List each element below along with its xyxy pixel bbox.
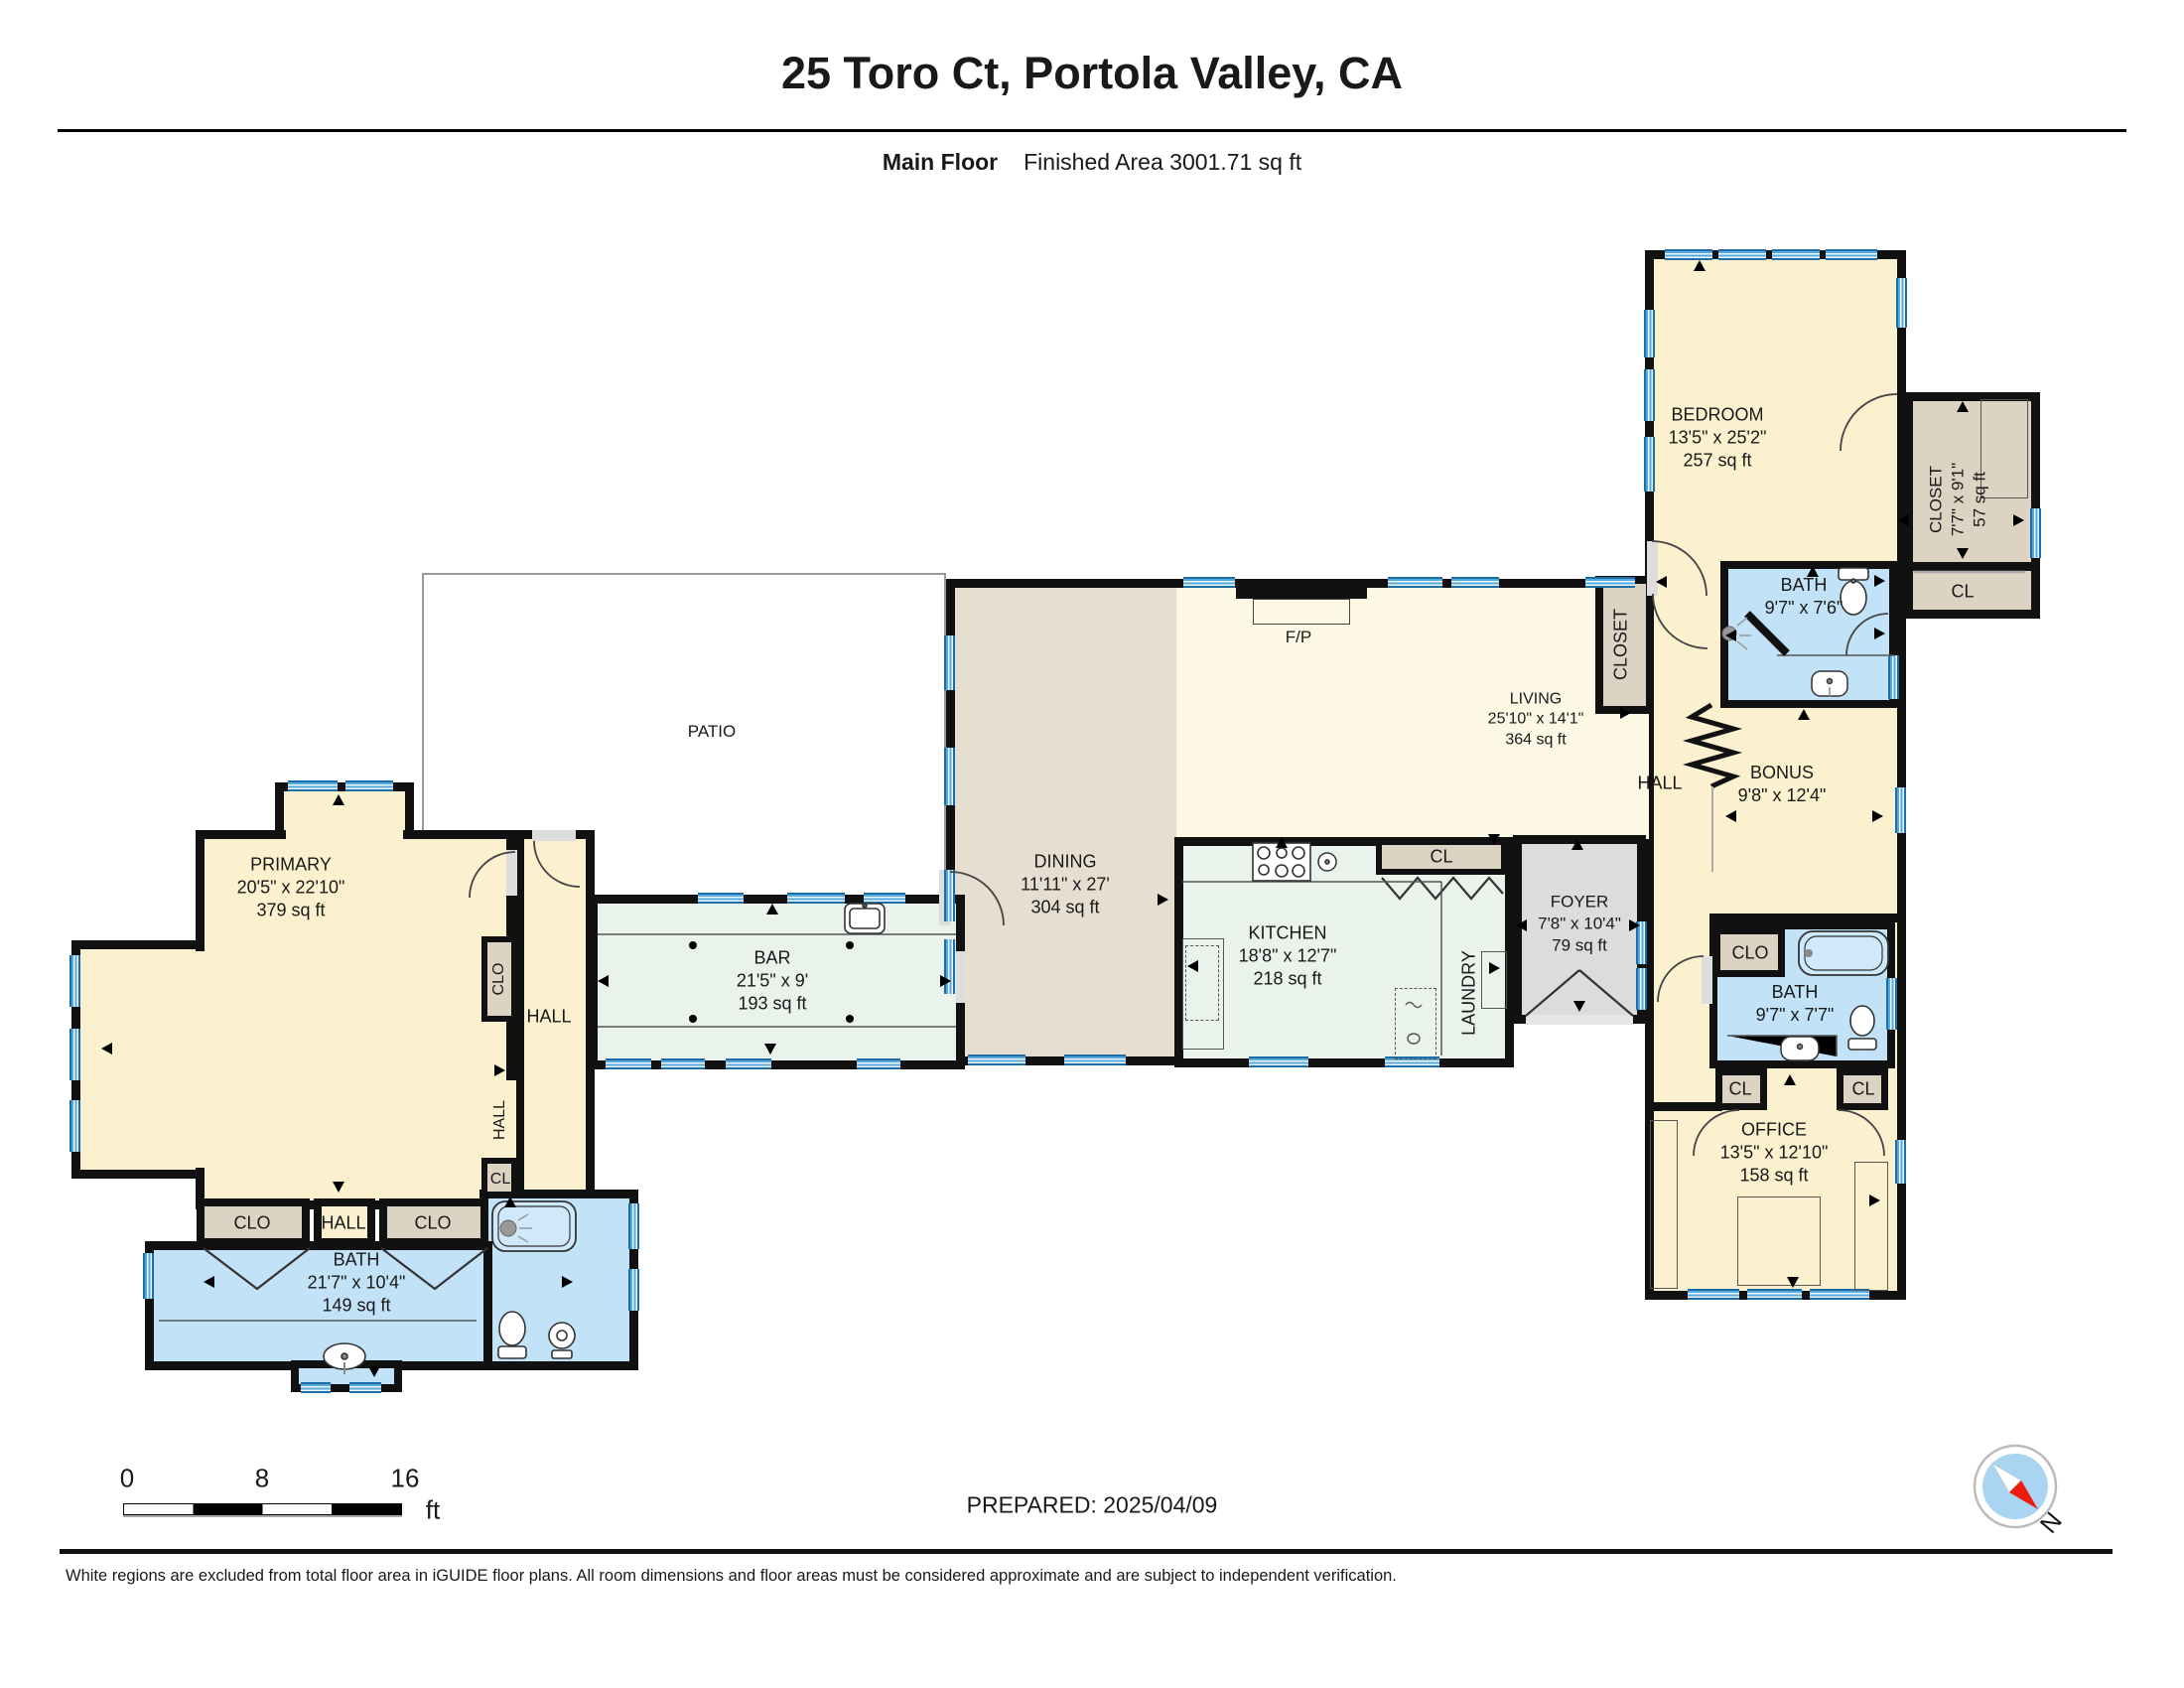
window xyxy=(1826,249,1877,260)
bar-column-dot xyxy=(846,941,854,949)
window xyxy=(1064,1055,1126,1065)
window xyxy=(1772,249,1820,260)
window xyxy=(944,635,955,690)
foyer-entry-gap xyxy=(1526,1015,1633,1025)
primary-label: PRIMARY 20'5" x 22'10" 379 sq ft xyxy=(237,853,345,921)
window xyxy=(1895,787,1906,833)
bar-column-dot xyxy=(689,941,697,949)
window xyxy=(1896,278,1907,328)
compass-icon: N xyxy=(1975,1446,2068,1539)
camera-marker xyxy=(598,975,609,987)
fireplace-wall xyxy=(1236,579,1367,599)
camera-marker xyxy=(1798,709,1810,720)
fireplace-label: F/P xyxy=(1286,627,1311,648)
laundry-box xyxy=(1481,951,1507,1009)
kitchen-counter-left xyxy=(1182,938,1224,1050)
disclaimer-text: White regions are excluded from total fl… xyxy=(66,1567,1397,1586)
window xyxy=(1644,310,1655,357)
camera-marker xyxy=(1787,1277,1799,1288)
cl-left-label: CL xyxy=(490,1170,510,1190)
window xyxy=(661,1058,705,1069)
footer-divider xyxy=(60,1549,2113,1554)
camera-marker xyxy=(1489,962,1500,974)
bar-label: BAR 21'5" x 9' 193 sq ft xyxy=(737,946,808,1015)
bar-dining-door-gap xyxy=(956,951,965,1003)
camera-marker xyxy=(1957,548,1969,559)
camera-marker xyxy=(1694,260,1706,271)
window xyxy=(1718,249,1766,260)
window xyxy=(345,780,393,791)
bath-office-door-gap xyxy=(1702,956,1712,1004)
living-closet-label: CLOSET xyxy=(1609,609,1632,680)
window xyxy=(628,1203,639,1249)
window xyxy=(1183,577,1235,588)
window xyxy=(1636,968,1647,1010)
window xyxy=(968,1055,1025,1065)
camera-marker xyxy=(1898,514,1909,526)
camera-marker xyxy=(1158,894,1168,906)
window xyxy=(1644,437,1655,492)
window xyxy=(143,1253,154,1299)
camera-marker xyxy=(1869,1195,1880,1206)
office-cl2-label: CL xyxy=(1851,1077,1874,1100)
bedroom-cl-label: CL xyxy=(1951,580,1974,603)
camera-marker xyxy=(1488,834,1500,845)
window xyxy=(944,870,955,921)
corridor-office-wall xyxy=(1645,1102,1722,1111)
bath-office-label: BATH 9'7" x 7'7" xyxy=(1756,981,1835,1027)
camera-marker xyxy=(1874,575,1885,587)
window xyxy=(698,893,744,904)
hall-vertical-label: HALL xyxy=(490,1100,510,1140)
window xyxy=(349,1382,381,1393)
window xyxy=(726,1058,771,1069)
camera-marker xyxy=(562,1276,573,1288)
camera-marker xyxy=(101,1043,112,1055)
camera-marker xyxy=(1874,628,1885,639)
foyer-label: FOYER 7'8" x 10'4" 79 sq ft xyxy=(1538,891,1621,955)
prepared-date-label: PREPARED: 2025/04/09 xyxy=(967,1492,1218,1519)
kitchen-cl-label: CL xyxy=(1430,845,1452,868)
camera-marker xyxy=(1620,707,1631,719)
dining-room xyxy=(946,579,1176,1065)
bath-primary-right-comp xyxy=(479,1190,638,1370)
camera-marker xyxy=(2013,514,2024,526)
scale-tick-8: 8 xyxy=(255,1464,269,1494)
bonus-bath-wall xyxy=(1709,914,1906,922)
window xyxy=(1249,1056,1308,1067)
bar-column-dot xyxy=(846,1015,854,1023)
scale-tick-16: 16 xyxy=(391,1464,420,1494)
primary-bump-patch xyxy=(286,827,403,842)
window xyxy=(787,893,845,904)
camera-marker xyxy=(940,975,951,987)
window xyxy=(288,780,338,791)
camera-marker xyxy=(764,1044,776,1055)
living-label: LIVING 25'10" x 14'1" 364 sq ft xyxy=(1488,689,1584,750)
title-divider xyxy=(58,129,2126,132)
window xyxy=(1451,577,1499,588)
scale-bar xyxy=(123,1503,402,1515)
laundry-label: LAUNDRY xyxy=(1457,950,1480,1036)
camera-marker xyxy=(1725,630,1736,641)
window xyxy=(69,1029,80,1080)
office-label: OFFICE 13'5" x 12'10" 158 sq ft xyxy=(1720,1118,1829,1187)
camera-marker xyxy=(1276,837,1288,848)
camera-marker xyxy=(368,1366,380,1377)
primary-clo-label: CLO xyxy=(489,963,509,996)
kitchen-label: KITCHEN 18'8" x 12'7" 218 sq ft xyxy=(1239,921,1337,990)
hall-left-label: HALL xyxy=(526,1005,571,1028)
camera-marker xyxy=(1784,1074,1796,1085)
camera-marker xyxy=(1656,576,1667,588)
window xyxy=(857,1058,900,1069)
bath-clo2-label: CLO xyxy=(414,1211,451,1234)
window xyxy=(944,748,955,805)
window xyxy=(628,1269,639,1311)
bath-primary-label: BATH 21'7" x 10'4" 149 sq ft xyxy=(308,1248,406,1317)
window xyxy=(301,1382,331,1393)
scale-unit-label: ft xyxy=(426,1495,440,1526)
camera-marker xyxy=(1725,810,1736,822)
window xyxy=(864,893,905,904)
hall-right-label: HALL xyxy=(1637,772,1682,794)
camera-marker xyxy=(494,1064,505,1076)
window xyxy=(1688,1289,1739,1300)
primary-left-patch xyxy=(194,951,207,1168)
office-shelf-left xyxy=(1650,1120,1678,1289)
camera-marker xyxy=(1187,960,1198,972)
bath-hall-label: HALL xyxy=(321,1211,365,1234)
floor-subtitle: Main FloorFinished Area 3001.71 sq ft xyxy=(0,149,2184,176)
floorplan-page: { "header": { "title": "25 Toro Ct, Port… xyxy=(0,0,2184,1688)
patio-label: PATIO xyxy=(688,721,737,743)
window xyxy=(1644,369,1655,421)
office-cl1-label: CL xyxy=(1728,1077,1751,1100)
fireplace-hearth xyxy=(1253,599,1350,625)
camera-marker xyxy=(1957,401,1969,412)
camera-marker xyxy=(766,904,778,914)
bonus-label: BONUS 9'8" x 12'4" xyxy=(1738,762,1827,807)
window xyxy=(1888,655,1899,699)
finished-area-label: Finished Area 3001.71 sq ft xyxy=(1024,149,1301,175)
window xyxy=(1388,577,1442,588)
window xyxy=(1895,1140,1906,1184)
office-clo-label: CLO xyxy=(1731,941,1768,964)
camera-marker xyxy=(1573,1001,1585,1012)
compass-north-label: N xyxy=(2035,1507,2068,1539)
window xyxy=(69,955,80,1007)
camera-marker xyxy=(1872,810,1883,822)
bath-top-label: BATH 9'7" x 7'6" xyxy=(1765,574,1843,620)
window xyxy=(2030,508,2041,558)
laundry-washer-dryer-dashed xyxy=(1395,988,1436,1059)
window xyxy=(1585,577,1635,588)
dining-label: DINING 11'11" x 27' 304 sq ft xyxy=(1021,850,1110,918)
camera-marker xyxy=(1807,566,1819,577)
closet-cl-divider-wall xyxy=(1904,562,2040,571)
page-title: 25 Toro Ct, Portola Valley, CA xyxy=(0,48,2184,99)
hall-patio-door-gap xyxy=(532,830,576,841)
camera-marker xyxy=(1571,839,1583,850)
office-desk xyxy=(1737,1196,1821,1286)
floor-label: Main Floor xyxy=(883,149,998,175)
window xyxy=(606,1058,651,1069)
camera-marker xyxy=(1629,919,1640,931)
bedroom-closet-label: CLOSET 7'7" x 9'1" 57 sq ft xyxy=(1925,463,1989,536)
bedroom-label: BEDROOM 13'5" x 25'2" 257 sq ft xyxy=(1669,403,1767,472)
bar-column-dot xyxy=(689,1015,697,1023)
window xyxy=(69,1100,80,1152)
scale-tick-0: 0 xyxy=(120,1464,134,1494)
primary-door-gap xyxy=(506,850,517,896)
office-closet-right xyxy=(1854,1162,1888,1291)
camera-marker xyxy=(204,1276,214,1288)
window xyxy=(1747,1289,1802,1300)
camera-marker xyxy=(333,794,344,805)
camera-marker xyxy=(504,1196,516,1207)
primary-room-left-bump xyxy=(71,940,205,1179)
camera-marker xyxy=(333,1182,344,1193)
camera-marker xyxy=(1516,919,1527,931)
window xyxy=(1665,249,1712,260)
window xyxy=(1886,978,1897,1030)
bath-clo1-label: CLO xyxy=(233,1211,270,1234)
